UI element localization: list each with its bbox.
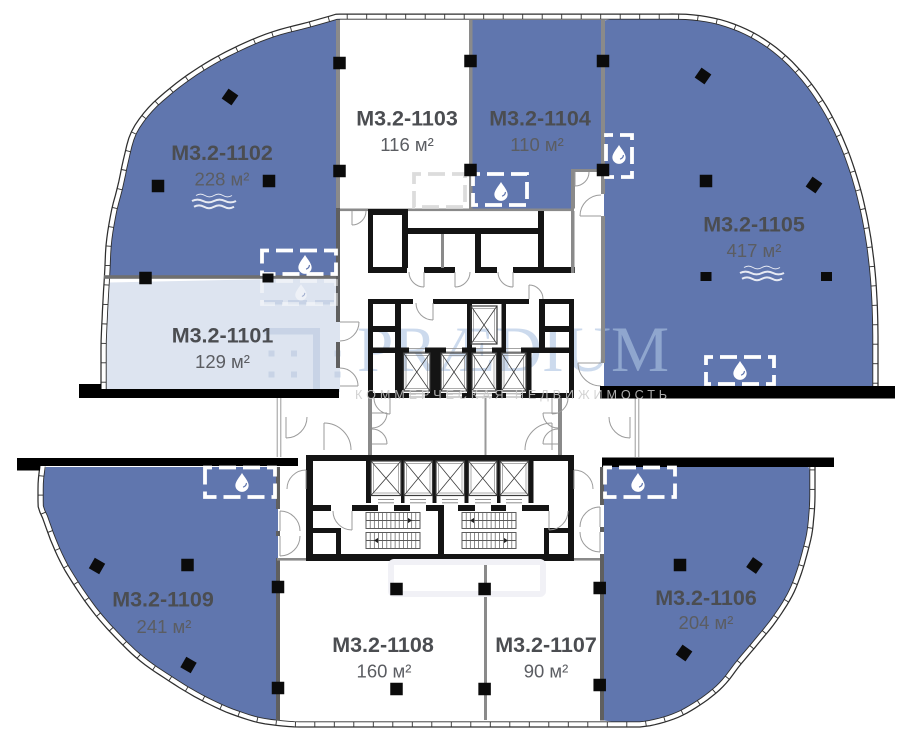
svg-text:M3.2-1105: M3.2-1105: [703, 213, 805, 237]
svg-text:M3.2-1103: M3.2-1103: [356, 107, 458, 131]
svg-text:241 м²: 241 м²: [137, 616, 192, 637]
svg-text:228 м²: 228 м²: [195, 169, 250, 190]
svg-text:M3.2-1104: M3.2-1104: [489, 107, 591, 131]
svg-text:110 м²: 110 м²: [510, 134, 564, 155]
svg-text:90 м²: 90 м²: [524, 660, 569, 681]
svg-text:160 м²: 160 м²: [357, 660, 412, 681]
svg-text:M3.2-1107: M3.2-1107: [495, 633, 597, 657]
svg-text:116 м²: 116 м²: [380, 134, 434, 155]
svg-text:M3.2-1106: M3.2-1106: [655, 586, 757, 610]
svg-text:204 м²: 204 м²: [679, 612, 734, 633]
svg-text:129 м²: 129 м²: [195, 351, 250, 372]
svg-text:КОММЕРЧЕСКАЯ НЕДВИЖИМОСТЬ: КОММЕРЧЕСКАЯ НЕДВИЖИМОСТЬ: [355, 387, 671, 402]
svg-text:M3.2-1102: M3.2-1102: [171, 141, 273, 165]
svg-text:417 м²: 417 м²: [727, 240, 782, 261]
svg-text:M3.2-1101: M3.2-1101: [172, 324, 274, 348]
svg-text:M3.2-1109: M3.2-1109: [112, 588, 214, 612]
svg-text:M3.2-1108: M3.2-1108: [332, 633, 434, 657]
